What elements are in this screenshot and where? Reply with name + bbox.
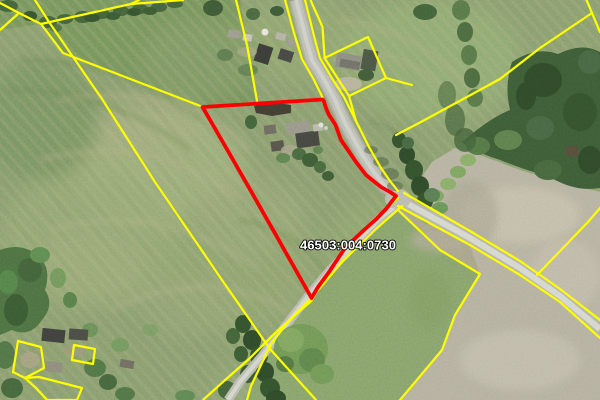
svg-text:46503:004:0730: 46503:004:0730 [300, 238, 396, 253]
